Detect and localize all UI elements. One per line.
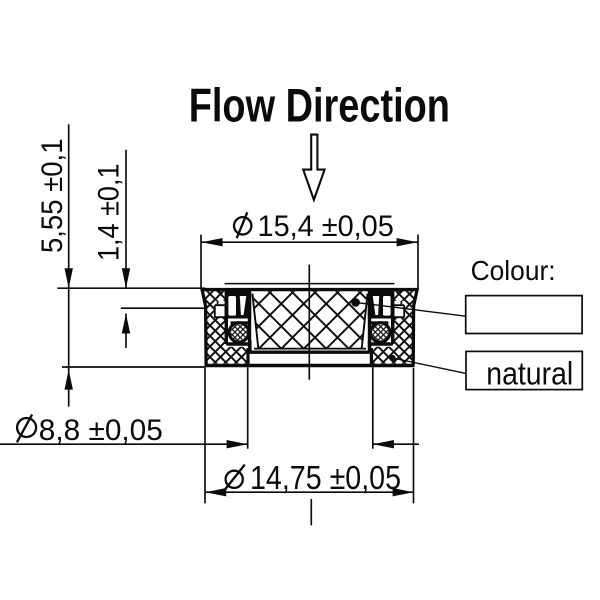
svg-text:Flow Direction: Flow Direction	[189, 79, 450, 132]
svg-text:natural: natural	[486, 355, 573, 391]
svg-text:Colour:: Colour:	[471, 255, 556, 286]
svg-text:14,75 ±0,05: 14,75 ±0,05	[250, 459, 401, 496]
svg-text:1,4 ±0,1: 1,4 ±0,1	[93, 164, 126, 262]
svg-text:15,4 ±0,05: 15,4 ±0,05	[258, 210, 394, 243]
svg-text:8,8 ±0,05: 8,8 ±0,05	[39, 414, 163, 447]
svg-text:5,55 ±0,1: 5,55 ±0,1	[36, 139, 69, 254]
